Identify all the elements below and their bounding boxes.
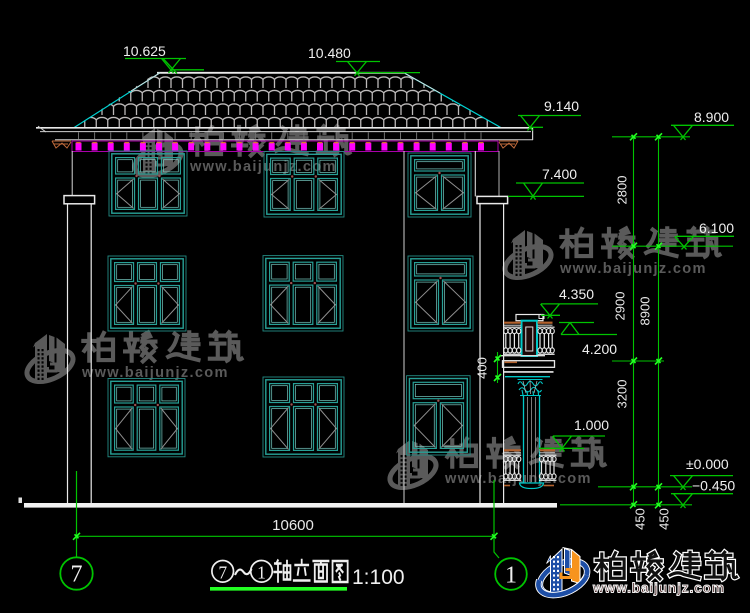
svg-text:2800: 2800: [615, 176, 630, 205]
svg-text:6.100: 6.100: [699, 220, 734, 236]
svg-text:450: 450: [657, 508, 672, 530]
svg-text:4.350: 4.350: [559, 286, 594, 302]
svg-text:4.200: 4.200: [582, 341, 617, 357]
svg-text:10600: 10600: [272, 517, 314, 534]
svg-text:9.140: 9.140: [544, 98, 579, 114]
svg-text:7: 7: [71, 562, 83, 588]
svg-text:7: 7: [218, 563, 227, 583]
svg-text:7.400: 7.400: [542, 166, 577, 182]
svg-text:400: 400: [475, 357, 490, 379]
svg-text:10.480: 10.480: [308, 45, 351, 61]
svg-text:±0.000: ±0.000: [686, 456, 729, 472]
svg-text:8900: 8900: [638, 297, 653, 326]
svg-text:1.000: 1.000: [574, 417, 609, 433]
svg-text:1: 1: [257, 563, 266, 583]
svg-text:1:100: 1:100: [352, 566, 405, 589]
svg-text:www.baijunjz.com: www.baijunjz.com: [592, 581, 725, 596]
svg-text:10.625: 10.625: [123, 43, 166, 59]
svg-text:www.baijunjz.com: www.baijunjz.com: [559, 261, 707, 277]
svg-text:3200: 3200: [615, 380, 630, 409]
svg-text:450: 450: [633, 508, 648, 530]
svg-text:2900: 2900: [613, 292, 628, 321]
svg-text:www.baijunjz.com: www.baijunjz.com: [189, 159, 337, 175]
svg-text:8.900: 8.900: [694, 109, 729, 125]
svg-text:−0.450: −0.450: [692, 478, 735, 494]
svg-text:1: 1: [505, 563, 517, 589]
